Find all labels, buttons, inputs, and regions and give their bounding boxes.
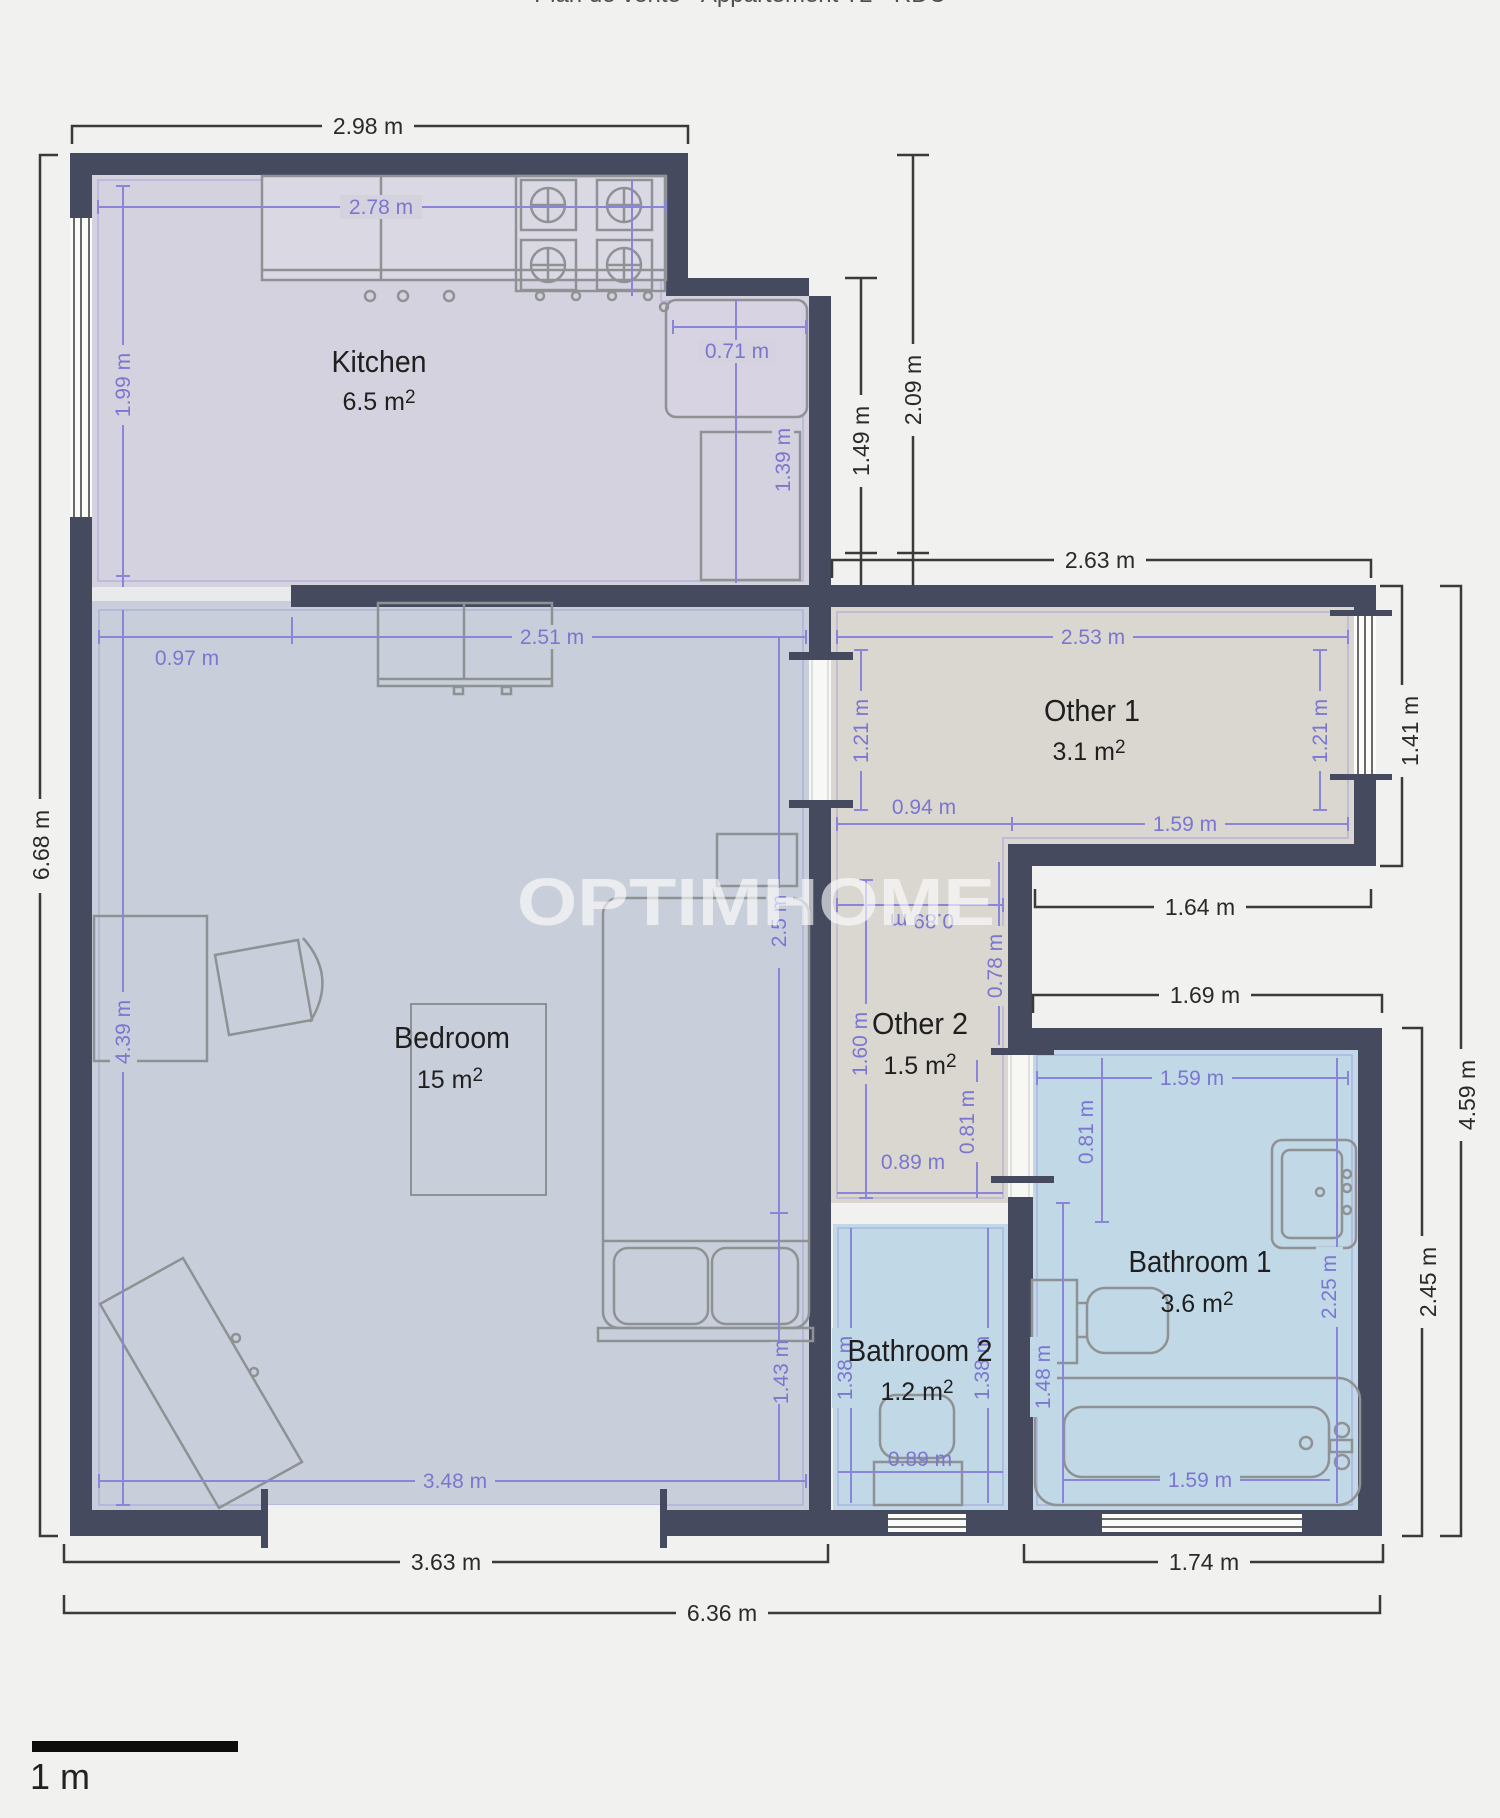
svg-text:1.2 m2: 1.2 m2: [880, 1377, 953, 1406]
svg-text:0.97 m: 0.97 m: [155, 647, 219, 670]
svg-text:1.5 m2: 1.5 m2: [883, 1051, 956, 1080]
svg-text:1.59 m: 1.59 m: [1160, 1067, 1224, 1090]
svg-text:0.71 m: 0.71 m: [705, 340, 769, 363]
svg-text:1.59 m: 1.59 m: [1168, 1469, 1232, 1492]
svg-text:6.36 m: 6.36 m: [687, 1600, 757, 1626]
svg-text:Other 2: Other 2: [872, 1006, 968, 1041]
svg-text:Bathroom 2: Bathroom 2: [848, 1333, 993, 1368]
svg-text:1.39 m: 1.39 m: [772, 428, 795, 492]
svg-text:1.21 m: 1.21 m: [1309, 699, 1332, 763]
svg-text:3.48 m: 3.48 m: [423, 1470, 487, 1493]
svg-text:0.89 m: 0.89 m: [881, 1151, 945, 1174]
svg-text:1.41 m: 1.41 m: [1397, 696, 1423, 766]
svg-text:1.74 m: 1.74 m: [1169, 1549, 1239, 1575]
svg-text:4.59 m: 4.59 m: [1454, 1060, 1480, 1130]
svg-text:1.59 m: 1.59 m: [1153, 813, 1217, 836]
svg-text:Kitchen: Kitchen: [332, 344, 427, 379]
svg-text:1.21 m: 1.21 m: [850, 699, 873, 763]
svg-text:2.53 m: 2.53 m: [1061, 626, 1125, 649]
svg-text:1.43 m: 1.43 m: [770, 1340, 793, 1404]
svg-text:OPTIMHOME: OPTIMHOME: [517, 865, 995, 940]
svg-text:0.78 m: 0.78 m: [984, 934, 1007, 998]
svg-text:Other 1: Other 1: [1044, 693, 1140, 728]
svg-text:2.51 m: 2.51 m: [520, 626, 584, 649]
svg-text:0.81 m: 0.81 m: [956, 1090, 979, 1154]
svg-text:3.6 m2: 3.6 m2: [1160, 1289, 1233, 1318]
svg-text:4.39 m: 4.39 m: [112, 1000, 135, 1064]
svg-text:1.60 m: 1.60 m: [849, 1012, 872, 1076]
svg-text:2.25 m: 2.25 m: [1318, 1255, 1341, 1319]
svg-text:6.68 m: 6.68 m: [28, 810, 54, 880]
svg-text:Bedroom: Bedroom: [394, 1020, 510, 1055]
svg-text:Bathroom 1: Bathroom 1: [1129, 1244, 1272, 1279]
svg-text:1.99 m: 1.99 m: [112, 353, 135, 417]
svg-text:6.5 m2: 6.5 m2: [342, 387, 415, 416]
svg-text:2.09 m: 2.09 m: [900, 355, 926, 425]
svg-text:2.98 m: 2.98 m: [333, 113, 403, 139]
svg-text:3.1 m2: 3.1 m2: [1052, 737, 1125, 766]
svg-text:1.49 m: 1.49 m: [848, 406, 874, 476]
svg-text:1 m: 1 m: [30, 1756, 90, 1797]
svg-text:3.63 m: 3.63 m: [411, 1549, 481, 1575]
svg-text:2.78 m: 2.78 m: [349, 196, 413, 219]
svg-text:0.89 m: 0.89 m: [888, 1448, 952, 1471]
svg-text:2.45 m: 2.45 m: [1415, 1247, 1441, 1317]
svg-text:Plan de vente - Appartement T2: Plan de vente - Appartement T2 - RDC: [534, 0, 946, 8]
svg-text:1.64 m: 1.64 m: [1165, 894, 1235, 920]
svg-text:1.69 m: 1.69 m: [1170, 982, 1240, 1008]
svg-text:1.48 m: 1.48 m: [1032, 1345, 1055, 1409]
svg-text:0.81 m: 0.81 m: [1075, 1100, 1098, 1164]
svg-text:0.94 m: 0.94 m: [892, 796, 956, 819]
svg-text:2.63 m: 2.63 m: [1065, 547, 1135, 573]
